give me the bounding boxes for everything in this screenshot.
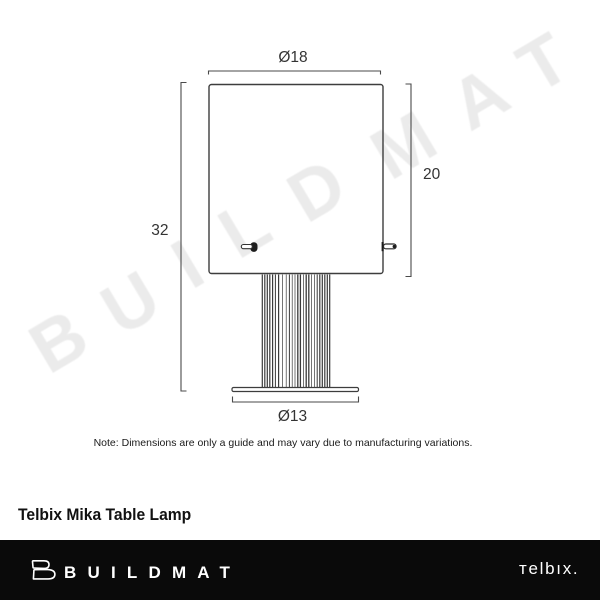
svg-text:20: 20 (423, 166, 441, 183)
svg-text:32: 32 (151, 222, 168, 239)
svg-text:Ø13: Ø13 (278, 408, 307, 425)
svg-text:Ø18: Ø18 (278, 49, 307, 66)
